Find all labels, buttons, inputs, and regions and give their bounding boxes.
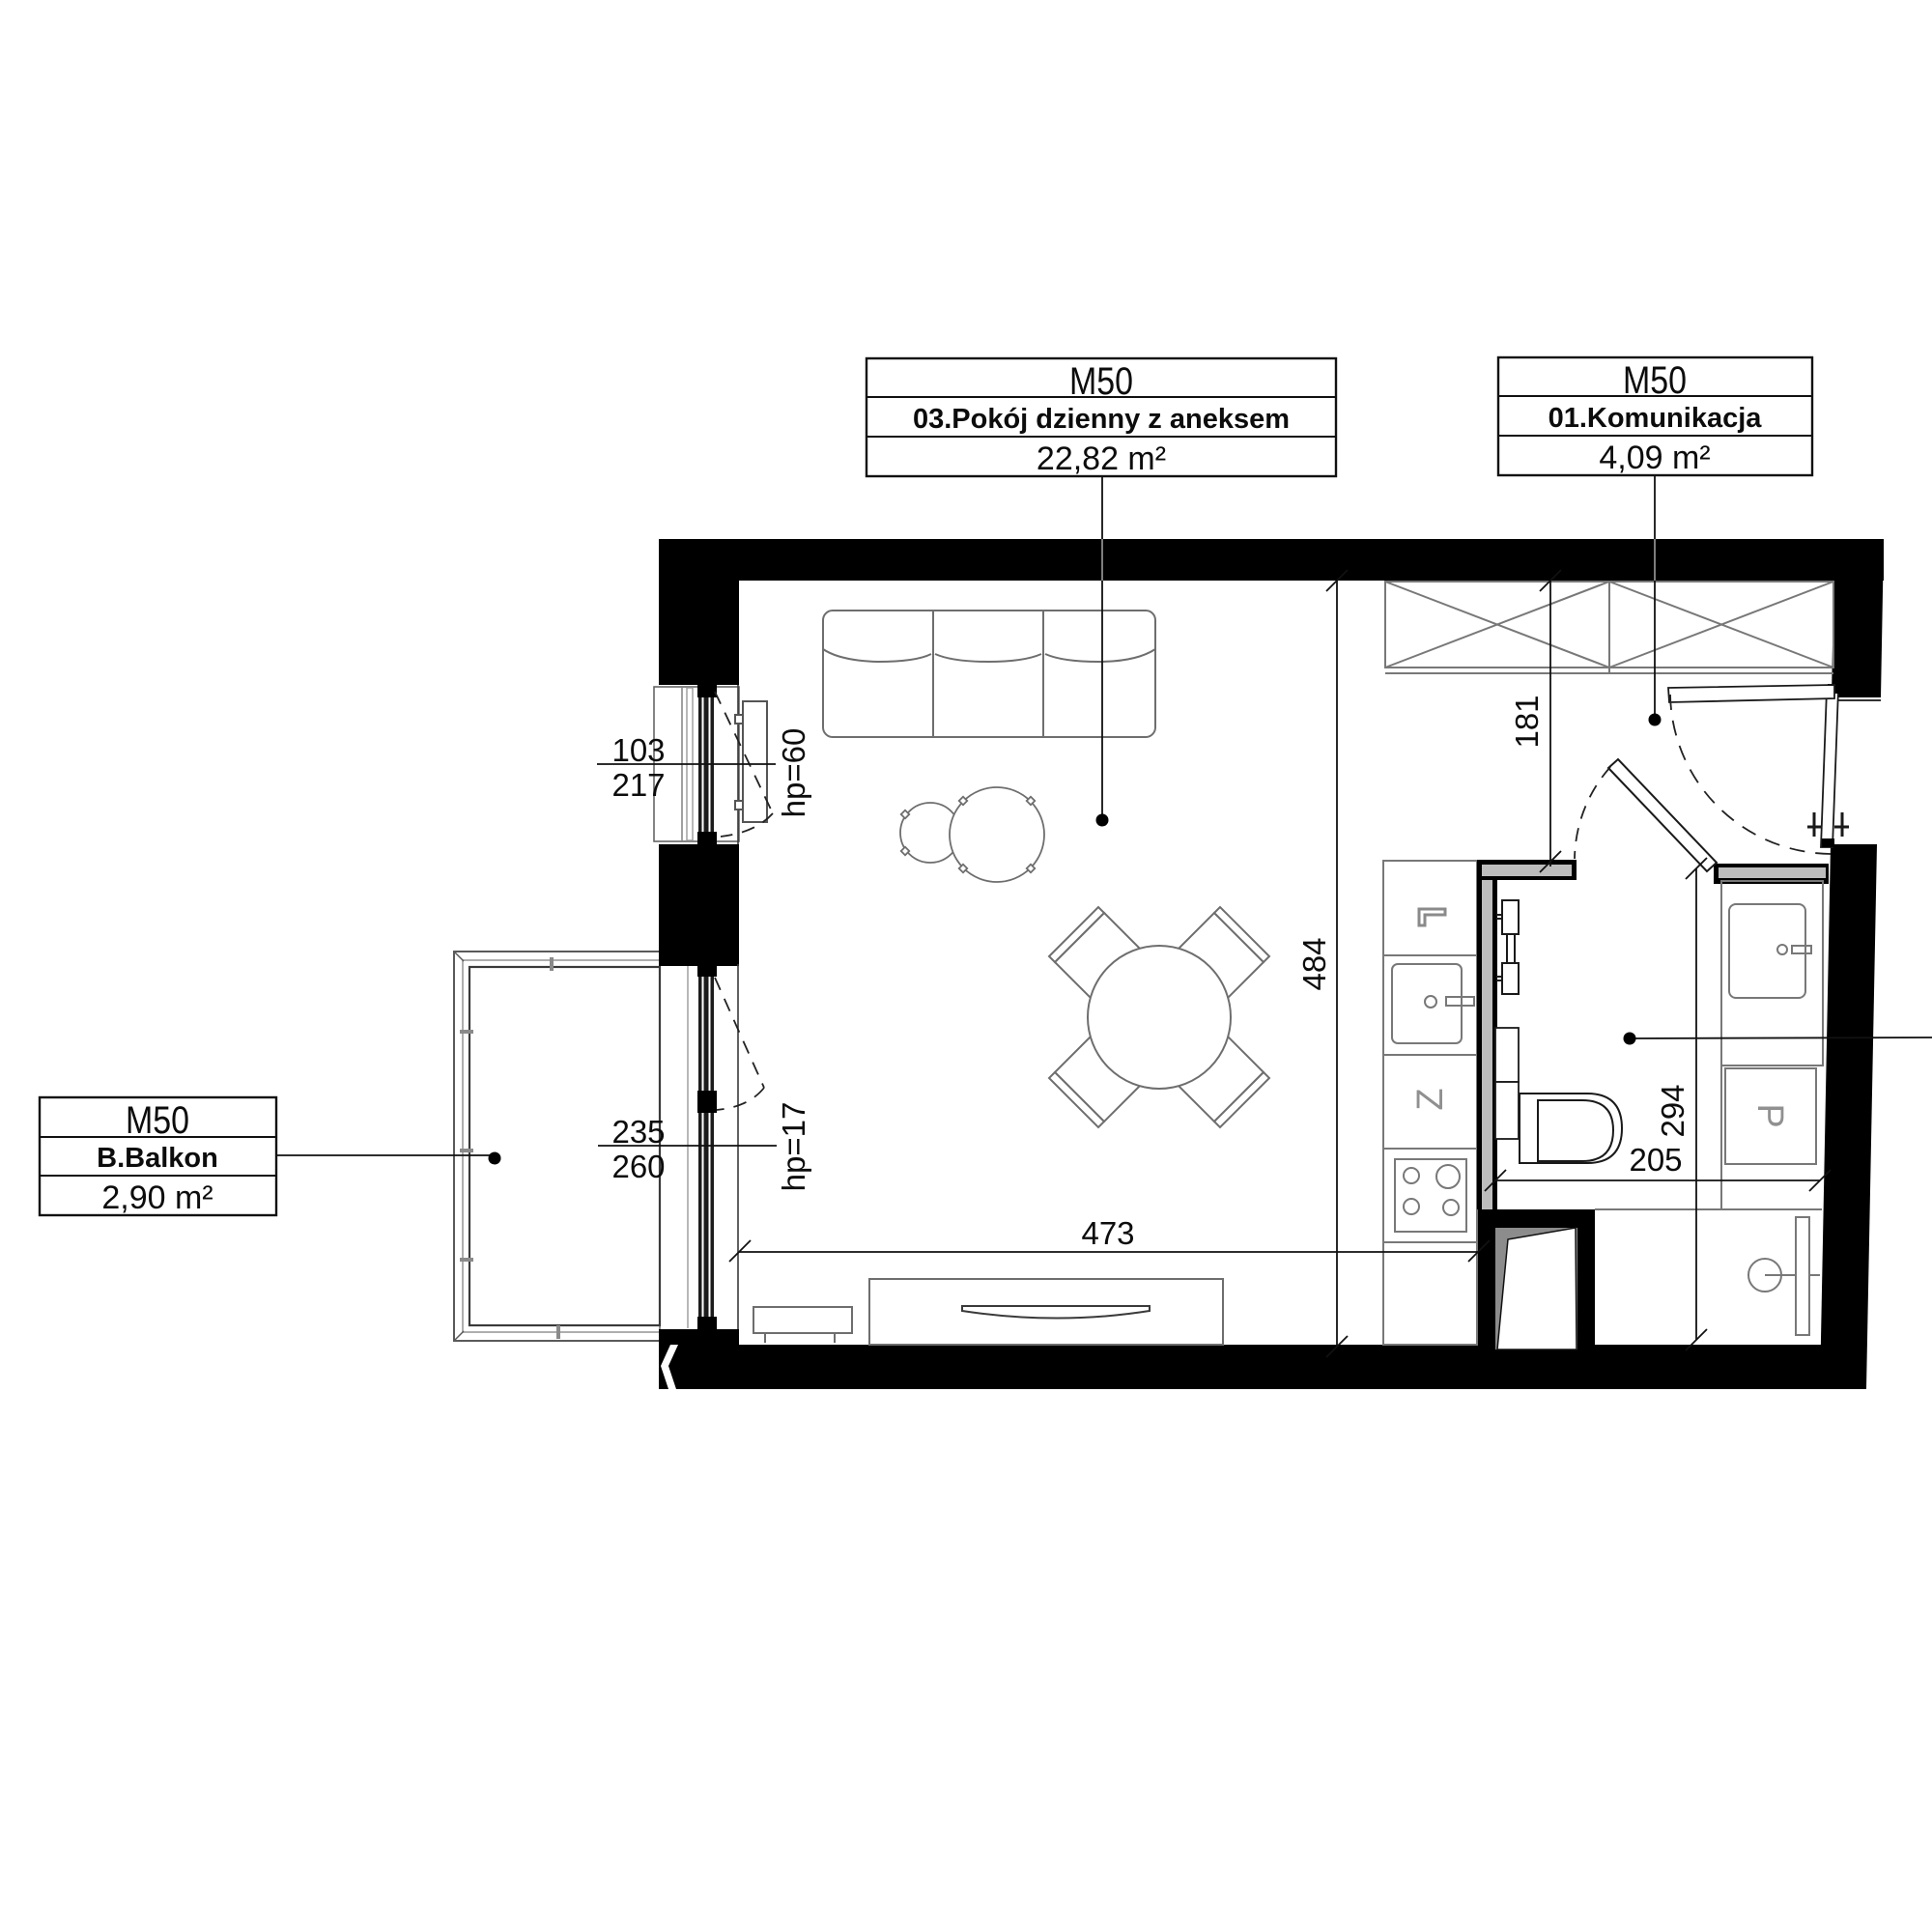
svg-text:217: 217 <box>611 767 665 803</box>
svg-text:205: 205 <box>1629 1142 1682 1178</box>
svg-text:03.Pokój dzienny z aneksem: 03.Pokój dzienny z aneksem <box>913 404 1290 435</box>
svg-text:M50: M50 <box>1623 359 1687 402</box>
svg-text:235: 235 <box>611 1114 665 1150</box>
svg-text:103: 103 <box>611 732 665 768</box>
svg-text:Z: Z <box>1410 1088 1451 1110</box>
svg-text:hp=60: hp=60 <box>776 728 811 818</box>
svg-text:484: 484 <box>1296 937 1332 990</box>
svg-text:260: 260 <box>611 1149 665 1184</box>
svg-text:2,90 m²: 2,90 m² <box>101 1179 213 1216</box>
svg-text:hp=17: hp=17 <box>776 1102 811 1192</box>
svg-text:22,82 m²: 22,82 m² <box>1037 440 1166 477</box>
svg-text:294: 294 <box>1655 1084 1690 1137</box>
svg-text:P: P <box>1749 1103 1790 1127</box>
svg-text:01.Komunikacja: 01.Komunikacja <box>1548 403 1763 434</box>
svg-text:4,09 m²: 4,09 m² <box>1599 440 1710 476</box>
svg-text:M50: M50 <box>126 1099 189 1142</box>
svg-text:M50: M50 <box>1069 360 1133 403</box>
svg-text:181: 181 <box>1509 695 1545 748</box>
svg-text:473: 473 <box>1081 1215 1134 1251</box>
svg-text:B.Balkon: B.Balkon <box>97 1143 218 1174</box>
